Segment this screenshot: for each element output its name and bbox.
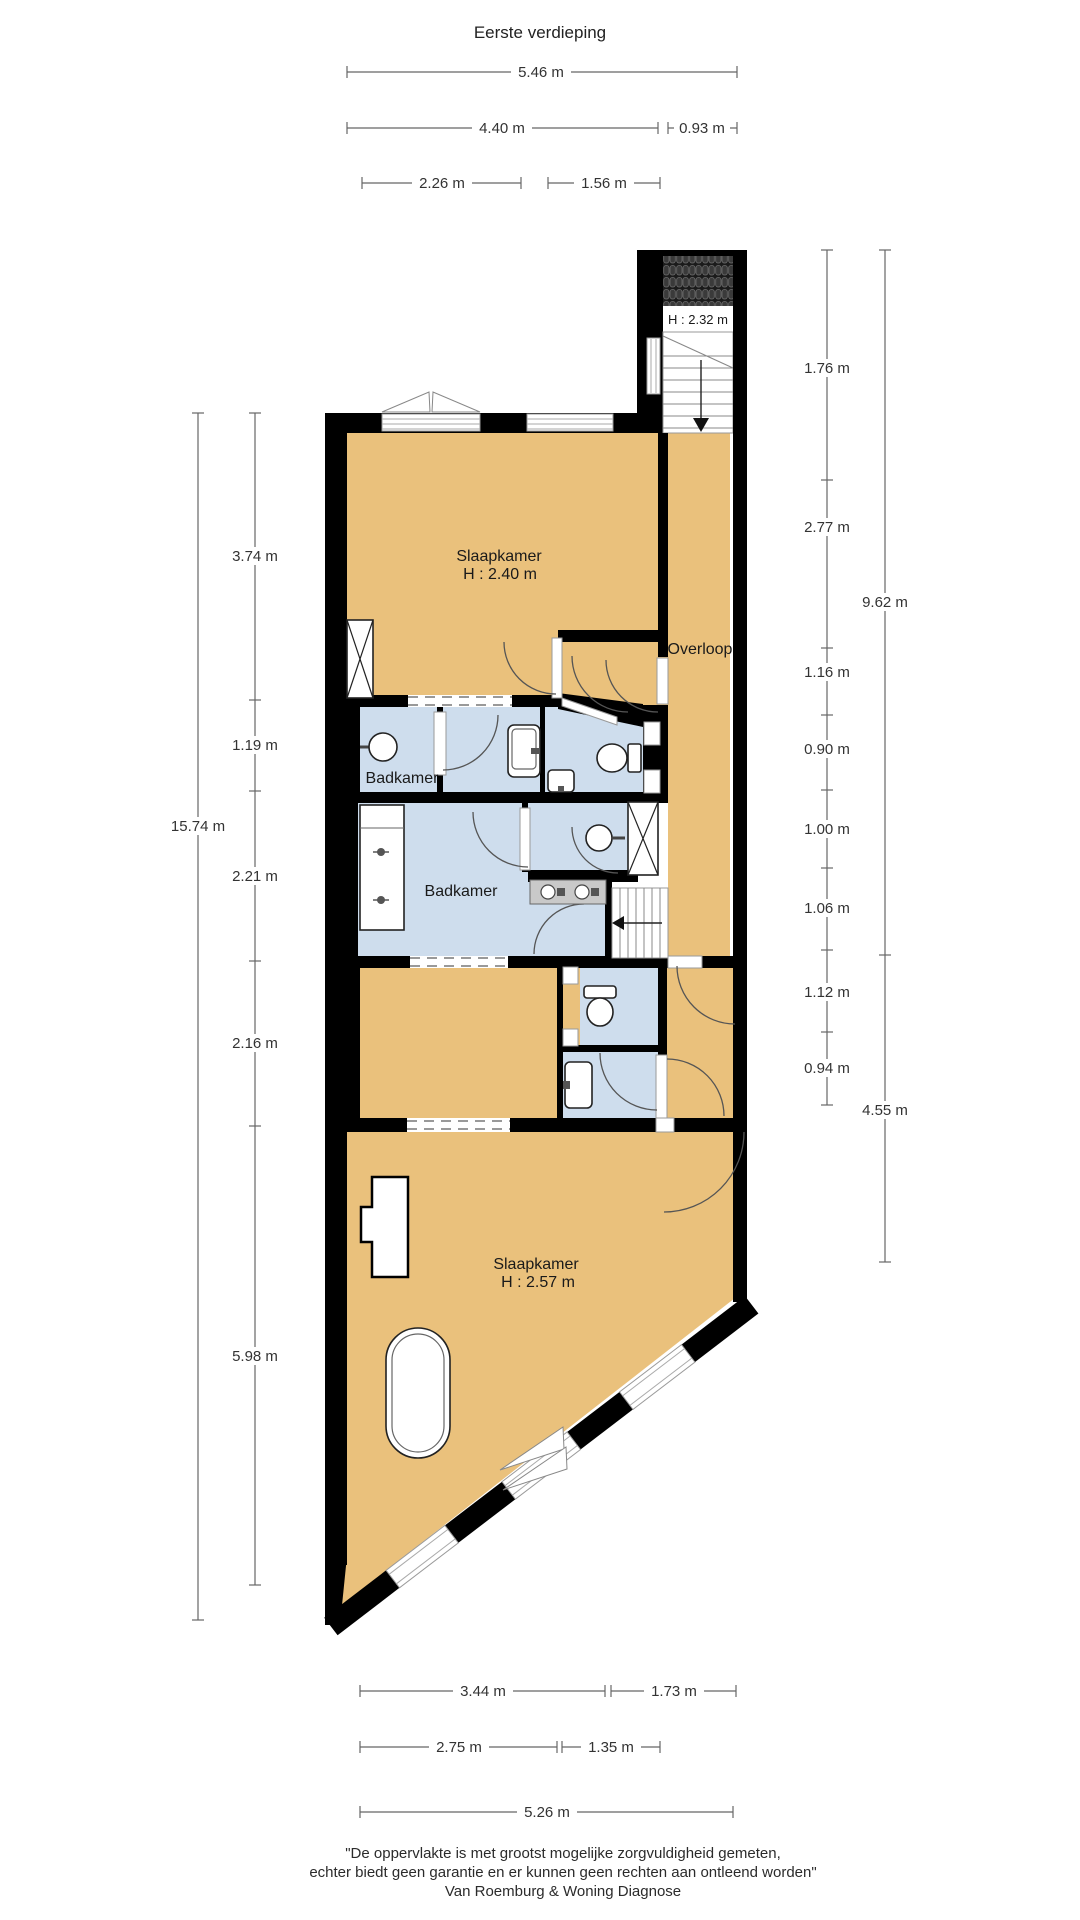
wall-niche <box>563 1029 578 1046</box>
stairs-up <box>663 332 733 433</box>
dim-label: 0.94 m <box>804 1060 850 1077</box>
dimensions-left: 15.74 m 3.74 m 1.19 m 2.21 m 2.16 m 5.98… <box>165 413 285 1620</box>
toilet-icon <box>584 986 616 998</box>
dim-label: 1.56 m <box>581 175 627 192</box>
dim-label: 1.76 m <box>804 360 850 377</box>
door-opening <box>656 1118 674 1132</box>
casement-icon <box>432 392 480 412</box>
dim-label: 4.40 m <box>479 120 525 137</box>
wall-bedroom-landing <box>658 433 668 657</box>
tap-icon <box>563 1081 570 1089</box>
room-label-landing: Overloop <box>668 641 733 658</box>
sink-round-icon <box>586 825 612 851</box>
dimensions-right: 1.76 m 2.77 m 1.16 m 0.90 m 1.00 m 1.06 … <box>797 250 915 1262</box>
window-top-right <box>527 414 613 431</box>
stairwell: H : 2.32 m <box>637 250 747 433</box>
dim-label: 1.06 m <box>804 900 850 917</box>
floorplan-page: Eerste verdieping H : 2.32 m <box>0 0 1080 1920</box>
room-label-bathroom-large: Badkamer <box>425 883 499 900</box>
dim-label: 1.12 m <box>804 984 850 1001</box>
room-height-bedroom-top: H : 2.40 m <box>463 566 537 583</box>
door-frame <box>656 1055 667 1119</box>
room-label-bathroom-small: Badkamer <box>366 770 440 787</box>
dim-label: 3.74 m <box>232 548 278 565</box>
footer-disclaimer: "De oppervlakte is met grootst mogelijke… <box>309 1845 816 1900</box>
stairwell-height-label: H : 2.32 m <box>668 312 728 327</box>
door-frame <box>434 712 446 775</box>
door-frame <box>520 808 530 870</box>
dim-label: 5.98 m <box>232 1348 278 1365</box>
toilet-icon <box>597 744 627 772</box>
room-landing <box>668 705 730 958</box>
dim-label: 0.90 m <box>804 741 850 758</box>
footer-line-1: "De oppervlakte is met grootst mogelijke… <box>345 1845 781 1862</box>
dim-label-total: 15.74 m <box>171 818 225 835</box>
dim-label: 2.75 m <box>436 1739 482 1756</box>
dim-label: 1.16 m <box>804 664 850 681</box>
casement-icon <box>382 392 430 412</box>
dim-label: 1.35 m <box>588 1739 634 1756</box>
room-height-bedroom-bottom: H : 2.57 m <box>501 1274 575 1291</box>
stairwell-window <box>647 338 660 394</box>
room-middle-bedroom <box>347 968 733 1118</box>
wall-left <box>325 413 347 1565</box>
stairwell-hatch <box>663 256 733 306</box>
page-title: Eerste verdieping <box>474 23 606 42</box>
dimensions-bottom: 3.44 m 1.73 m 2.75 m 1.35 m 5.26 m <box>360 1682 736 1821</box>
tap-icon <box>531 748 540 754</box>
window-top-left <box>382 414 480 431</box>
floorplan-drawing: Eerste verdieping H : 2.32 m <box>0 0 1080 1920</box>
counter-icon <box>360 805 404 930</box>
dim-label: 1.73 m <box>651 1683 697 1700</box>
sink-round-icon <box>369 733 397 761</box>
room-label-bedroom-bottom: Slaapkamer <box>493 1256 579 1273</box>
door-frame <box>552 638 562 698</box>
dim-label: 1.19 m <box>232 737 278 754</box>
room-label-bedroom-top: Slaapkamer <box>456 548 542 565</box>
dim-label: 0.93 m <box>679 120 725 137</box>
wall-niche <box>644 770 660 793</box>
dim-label: 4.55 m <box>862 1102 908 1119</box>
wall-vestibule-top <box>558 630 660 642</box>
door-opening <box>668 956 702 968</box>
dim-label: 2.26 m <box>419 175 465 192</box>
wall-right <box>733 250 747 1302</box>
dimensions-top: 5.46 m 4.40 m 0.93 m 2.26 m 1.56 m <box>347 63 737 192</box>
footer-line-2: echter biedt geen garantie en er kunnen … <box>309 1864 816 1881</box>
dim-label: 5.46 m <box>518 64 564 81</box>
room-bedroom-top <box>347 433 730 705</box>
dim-label: 1.00 m <box>804 821 850 838</box>
dim-label: 2.77 m <box>804 519 850 536</box>
dim-label: 3.44 m <box>460 1683 506 1700</box>
wall-niche <box>563 967 578 984</box>
dim-label: 2.21 m <box>232 868 278 885</box>
dim-label: 5.26 m <box>524 1804 570 1821</box>
footer-line-3: Van Roemburg & Woning Diagnose <box>445 1883 681 1900</box>
door-frame <box>657 658 668 704</box>
dim-label: 2.16 m <box>232 1035 278 1052</box>
dim-label: 9.62 m <box>862 594 908 611</box>
wall-niche <box>644 722 660 745</box>
